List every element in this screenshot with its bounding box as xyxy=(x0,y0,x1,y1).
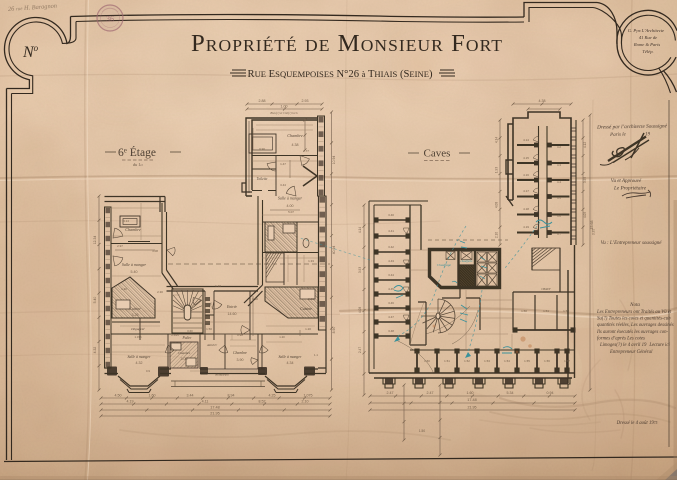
svg-text:4.2: 4.2 xyxy=(557,145,561,149)
svg-text:0.9: 0.9 xyxy=(146,369,150,373)
svg-text:1.52: 1.52 xyxy=(464,359,470,363)
svg-text:2.88: 2.88 xyxy=(259,99,266,103)
svg-text:Salle à manger: Salle à manger xyxy=(128,355,152,359)
svg-text:Entrée: Entrée xyxy=(226,305,237,309)
svg-text:Vu : L’Entrepreneur soussigné: Vu : L’Entrepreneur soussigné xyxy=(601,241,663,246)
svg-text:0.90: 0.90 xyxy=(259,147,265,151)
svg-text:4.25: 4.25 xyxy=(269,394,276,398)
svg-text:4.45: 4.45 xyxy=(388,287,394,291)
svg-text:3.46: 3.46 xyxy=(388,301,394,305)
svg-text:3.08: 3.08 xyxy=(152,249,158,253)
svg-text:3.44: 3.44 xyxy=(187,394,194,398)
svg-text:4.38: 4.38 xyxy=(539,99,546,103)
svg-text:21.95: 21.95 xyxy=(210,412,220,416)
svg-text:4.08: 4.08 xyxy=(358,307,362,313)
svg-text:Entrepreneur Général: Entrepreneur Général xyxy=(609,350,653,355)
svg-text:8.94: 8.94 xyxy=(228,394,235,398)
svg-text:Salle à manger: Salle à manger xyxy=(279,355,303,359)
svg-text:4.14: 4.14 xyxy=(523,138,529,142)
svg-text:2.97: 2.97 xyxy=(117,244,123,248)
svg-text:Restaurant: Restaurant xyxy=(214,373,228,377)
svg-text:Télép.: Télép. xyxy=(642,49,653,54)
svg-text:Ils auront éxecutés les ouvrag: Ils auront éxecutés les ouvrages con- xyxy=(596,330,668,335)
svg-text:0.94: 0.94 xyxy=(547,391,554,395)
svg-text:Vu et Approuvé: Vu et Approuvé xyxy=(611,179,642,184)
svg-text:Salle à manger: Salle à manger xyxy=(122,262,147,267)
svg-text:41 Rue de: 41 Rue de xyxy=(639,35,657,40)
svg-text:chaufferie: chaufferie xyxy=(460,259,473,263)
svg-text:formes d’après Les cotes: formes d’après Les cotes xyxy=(597,337,645,342)
svg-text:2.10: 2.10 xyxy=(302,400,309,404)
svg-text:Su(?) Toutes les cotes et quan: Su(?) Toutes les cotes et quantités-cub xyxy=(597,317,671,322)
svg-text:Toilette: Toilette xyxy=(257,177,268,181)
svg-text:Salle à manger: Salle à manger xyxy=(278,196,303,201)
svg-text:5.40: 5.40 xyxy=(93,297,97,304)
svg-text:0.60: 0.60 xyxy=(187,329,193,333)
svg-text:4.17: 4.17 xyxy=(523,189,529,193)
svg-text:Palier: Palier xyxy=(182,336,193,340)
svg-text:4.50: 4.50 xyxy=(115,394,122,398)
svg-text:40.94: 40.94 xyxy=(332,246,336,255)
svg-text:quantités réelles, Les ouvrage: quantités réelles, Les ouvrages dessinés xyxy=(597,323,674,328)
svg-text:2.47: 2.47 xyxy=(387,391,394,395)
svg-text:1.51: 1.51 xyxy=(444,359,450,363)
svg-text:4.47: 4.47 xyxy=(388,315,394,319)
svg-text:4.5: 4.5 xyxy=(557,196,561,200)
svg-text:12.34: 12.34 xyxy=(93,236,97,245)
svg-text:4.43: 4.43 xyxy=(388,259,394,263)
svg-text:1.075: 1.075 xyxy=(135,335,142,339)
svg-text:1.20: 1.20 xyxy=(305,327,311,331)
svg-text:1.60: 1.60 xyxy=(467,391,474,395)
svg-text:4.14: 4.14 xyxy=(495,137,499,143)
svg-text:Bleu(?) et Ciel(?) Gris: Bleu(?) et Ciel(?) Gris xyxy=(270,111,298,115)
svg-text:1.20: 1.20 xyxy=(279,335,285,339)
svg-text:3.90: 3.90 xyxy=(237,358,244,362)
svg-text:2.93: 2.93 xyxy=(302,99,309,103)
svg-text:17.48: 17.48 xyxy=(210,406,220,410)
svg-text:RUE ESQUEMPOISES N°26 à THIAIS: RUE ESQUEMPOISES N°26 à THIAIS (SEINE) xyxy=(248,69,434,80)
svg-text:4.19: 4.19 xyxy=(127,400,134,404)
svg-text:3.35: 3.35 xyxy=(592,229,596,235)
svg-text:3.42: 3.42 xyxy=(388,245,394,249)
svg-text:1.1: 1.1 xyxy=(314,353,318,357)
svg-text:3.44: 3.44 xyxy=(280,183,286,187)
svg-text:Cuisine: Cuisine xyxy=(129,307,141,311)
svg-text:2.10: 2.10 xyxy=(495,232,499,238)
svg-text:4.3: 4.3 xyxy=(557,163,561,167)
svg-text:2.77: 2.77 xyxy=(303,149,309,153)
svg-text:4.05: 4.05 xyxy=(583,212,587,218)
svg-text:1.10: 1.10 xyxy=(215,284,221,288)
svg-text:Les Entrepreneurs ont Traités: Les Entrepreneurs ont Traités au Vû et xyxy=(596,310,672,315)
svg-text:2.47: 2.47 xyxy=(427,391,434,395)
svg-text:Antichᵇʳᵉ: Antichᵇʳᵉ xyxy=(206,343,217,347)
svg-text:5.07: 5.07 xyxy=(288,210,294,214)
svg-text:3.44: 3.44 xyxy=(388,273,394,277)
svg-text:15.68: 15.68 xyxy=(590,221,594,230)
svg-text:1.075: 1.075 xyxy=(304,394,313,398)
svg-text:Chambre: Chambre xyxy=(178,351,191,355)
svg-text:Chauffage: Chauffage xyxy=(437,263,452,267)
svg-text:1.00: 1.00 xyxy=(281,105,288,109)
svg-text:Cuisine: Cuisine xyxy=(300,307,312,311)
svg-text:Limoges(?) le 4 avril 19Lectur: Limoges(?) le 4 avril 19Lecture ici xyxy=(599,343,671,348)
svg-text:4.11: 4.11 xyxy=(202,400,209,404)
svg-text:2.20: 2.20 xyxy=(308,297,314,301)
svg-text:1.60: 1.60 xyxy=(149,394,156,398)
svg-text:4.32: 4.32 xyxy=(93,347,97,354)
svg-text:1.50: 1.50 xyxy=(419,429,425,433)
svg-text:4.16: 4.16 xyxy=(523,173,529,177)
svg-text:4.38: 4.38 xyxy=(292,143,299,147)
svg-text:Dressé le 4 août 1975: Dressé le 4 août 1975 xyxy=(616,421,658,426)
svg-text:du 1er: du 1er xyxy=(133,162,144,167)
svg-text:3.95: 3.95 xyxy=(583,177,587,183)
svg-text:4.32: 4.32 xyxy=(136,361,143,365)
svg-text:Caves: Caves xyxy=(424,148,451,160)
svg-text:3.48: 3.48 xyxy=(388,329,394,333)
svg-text:1.56: 1.56 xyxy=(544,359,550,363)
svg-text:4.7: 4.7 xyxy=(557,232,561,236)
svg-text:Chambre: Chambre xyxy=(233,351,247,355)
svg-text:2.47: 2.47 xyxy=(358,347,362,353)
svg-text:4.00: 4.00 xyxy=(287,204,294,208)
svg-text:CHAUF: CHAUF xyxy=(541,288,551,291)
svg-text:1.53: 1.53 xyxy=(484,359,490,363)
svg-text:4.15: 4.15 xyxy=(523,156,529,160)
svg-text:1.55: 1.55 xyxy=(524,359,530,363)
svg-text:0.90: 0.90 xyxy=(237,333,243,337)
svg-text:Chambre: Chambre xyxy=(287,133,303,138)
svg-text:10.94: 10.94 xyxy=(332,156,336,165)
svg-text:3.93: 3.93 xyxy=(358,267,362,273)
svg-text:1.50: 1.50 xyxy=(206,327,212,331)
svg-text:3.06: 3.06 xyxy=(181,357,188,361)
svg-text:1.54: 1.54 xyxy=(504,359,510,363)
svg-text:1.20: 1.20 xyxy=(121,287,127,291)
svg-text:4.18: 4.18 xyxy=(523,207,529,211)
svg-text:4.14: 4.14 xyxy=(123,219,129,223)
svg-text:5.40: 5.40 xyxy=(131,270,138,274)
svg-text:8.90: 8.90 xyxy=(332,327,336,334)
svg-text:Rome & Paris: Rome & Paris xyxy=(633,42,660,47)
svg-text:1.50: 1.50 xyxy=(521,309,527,313)
svg-text:1.47: 1.47 xyxy=(280,162,286,166)
svg-text:36: 36 xyxy=(106,15,114,24)
svg-text:4.34: 4.34 xyxy=(287,361,294,365)
svg-text:4.19: 4.19 xyxy=(523,225,529,229)
svg-text:W.C: W.C xyxy=(209,302,213,308)
svg-text:1.33: 1.33 xyxy=(308,259,314,263)
svg-text:1.93: 1.93 xyxy=(495,167,499,173)
svg-text:Dressé par l’architecte Soussi: Dressé par l’architecte Soussigné xyxy=(596,123,668,130)
svg-text:Le Propriétaire: Le Propriétaire xyxy=(613,186,647,192)
svg-text:Nota: Nota xyxy=(629,303,640,308)
svg-text:4.08: 4.08 xyxy=(495,202,499,208)
svg-text:5.34: 5.34 xyxy=(507,391,514,395)
svg-text:3.40: 3.40 xyxy=(388,213,394,217)
svg-text:4.6: 4.6 xyxy=(557,214,561,218)
svg-text:2.30: 2.30 xyxy=(157,290,163,294)
svg-text:Chambre: Chambre xyxy=(125,227,141,232)
svg-text:4.4: 4.4 xyxy=(557,180,561,184)
svg-text:4.12: 4.12 xyxy=(583,142,587,148)
svg-text:14.60: 14.60 xyxy=(228,312,237,316)
svg-text:G. Pym L’Architecte: G. Pym L’Architecte xyxy=(628,28,664,33)
svg-text:6e Étage: 6e Étage xyxy=(118,145,156,159)
svg-text:17.48: 17.48 xyxy=(467,398,477,402)
svg-text:8.52: 8.52 xyxy=(259,400,266,404)
svg-text:1.57: 1.57 xyxy=(564,359,570,363)
svg-text:21.95: 21.95 xyxy=(468,406,477,410)
svg-text:4.14: 4.14 xyxy=(358,227,362,233)
svg-text:Dégagemᵗ: Dégagemᵗ xyxy=(130,327,145,331)
svg-text:4.41: 4.41 xyxy=(388,229,394,233)
svg-text:2.495: 2.495 xyxy=(171,333,179,337)
svg-text:1.51: 1.51 xyxy=(543,309,549,313)
svg-text:3.25: 3.25 xyxy=(132,313,139,317)
